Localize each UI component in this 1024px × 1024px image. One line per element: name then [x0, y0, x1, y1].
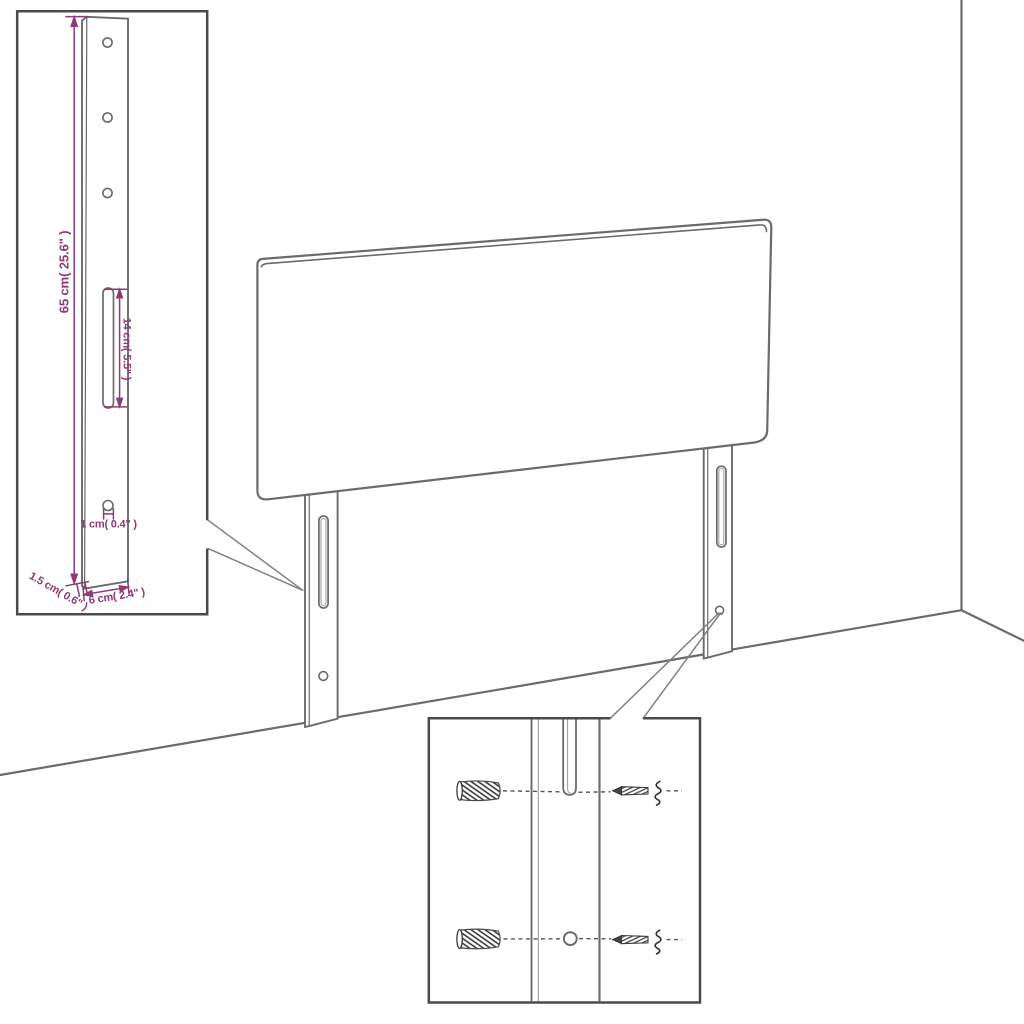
wall-plug-bottom [457, 929, 500, 949]
right-leg-slot [717, 466, 726, 547]
dimension-label-hole-diameter: 1 cm( 0.4" ) [80, 519, 137, 530]
leg-hole-3 [103, 188, 112, 197]
leg-slot [103, 288, 114, 408]
inset-hardware-border [429, 718, 700, 1002]
screw-top [613, 781, 661, 805]
dimension-label-leg-height: 65 cm( 25.6" ) [57, 231, 70, 314]
wall-plug-top [457, 781, 500, 801]
dimension-label-slot-length: 14 cm( 5.5" ) [121, 318, 132, 381]
leg-bottom-hole [103, 501, 113, 511]
callout-cones [208, 520, 720, 718]
screw-bottom [613, 930, 661, 954]
diagram-canvas: 65 cm( 25.6" ) 14 cm( 5.5" ) 1 cm( 0.4" … [0, 0, 1024, 1024]
headboard-outline [257, 220, 771, 500]
right-leg [704, 445, 732, 658]
left-leg [305, 491, 338, 727]
floor-line [0, 610, 1024, 775]
left-leg-hole [319, 672, 328, 681]
line-art [0, 0, 1024, 1024]
slot-closeup [563, 720, 576, 795]
leg-hole-1 [103, 38, 112, 47]
left-leg-slot [319, 516, 328, 608]
hole-closeup [564, 932, 577, 945]
headboard-panel [257, 220, 771, 500]
inset-hardware-detail [429, 718, 700, 1002]
leg-hole-2 [103, 113, 112, 122]
callout-cone-left-leg [208, 520, 303, 590]
alignment-dashes [503, 791, 682, 940]
